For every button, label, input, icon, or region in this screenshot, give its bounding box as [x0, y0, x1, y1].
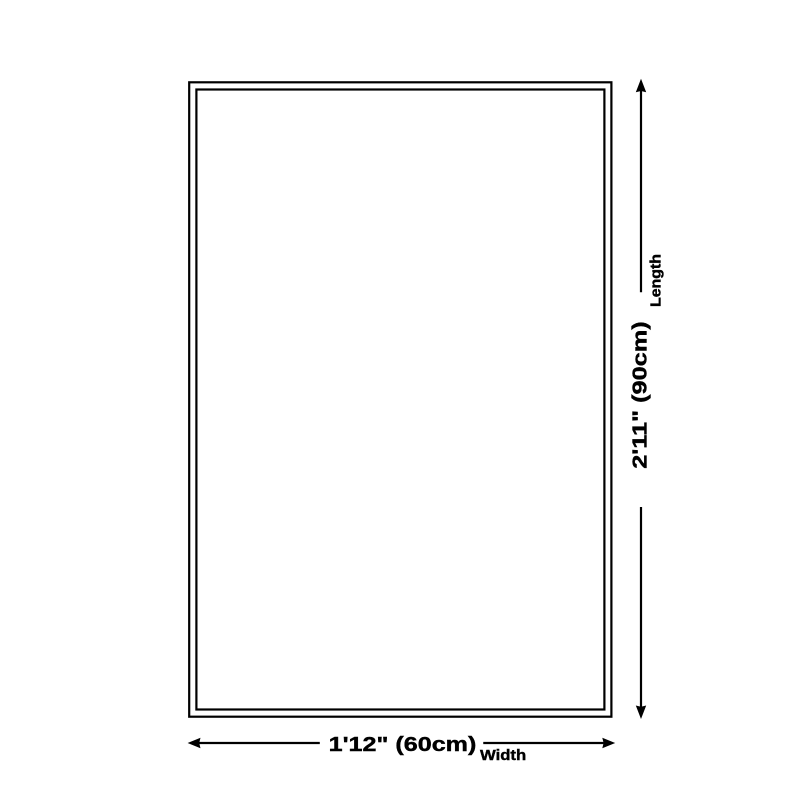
svg-text:2'11" (90cm): 2'11" (90cm) [630, 321, 652, 469]
svg-text:Length: Length [648, 254, 664, 307]
svg-text:Width: Width [480, 748, 526, 764]
svg-text:1'12" (60cm): 1'12" (60cm) [329, 734, 477, 756]
